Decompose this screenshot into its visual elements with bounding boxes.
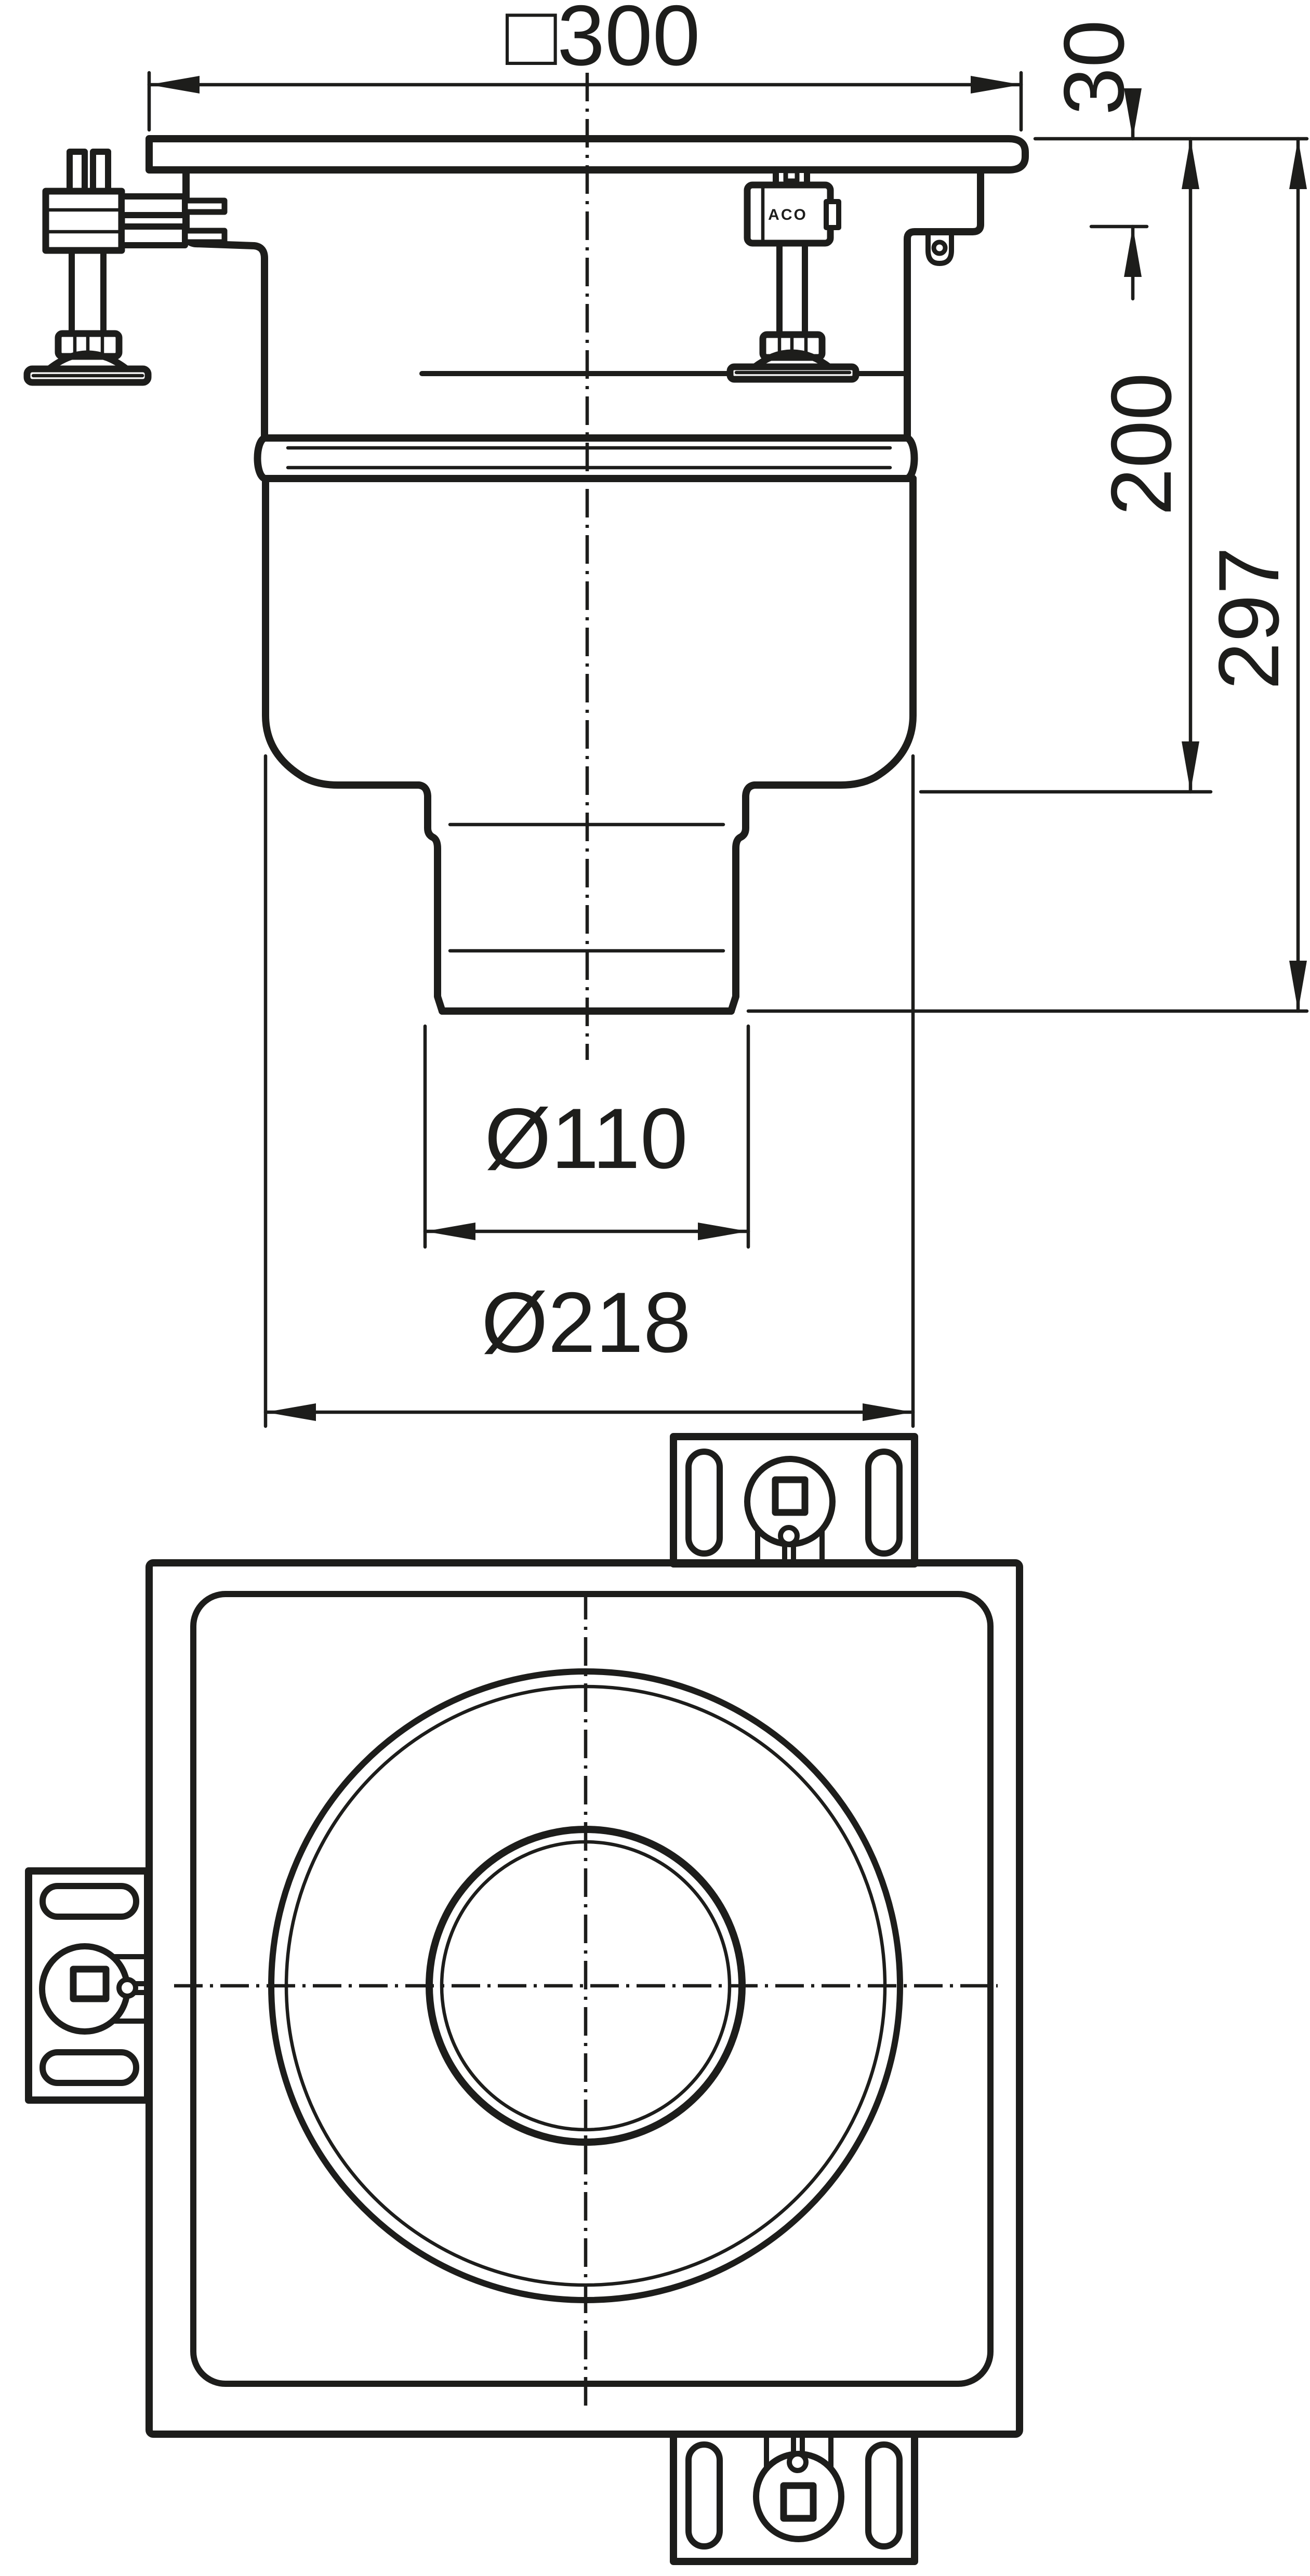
dim-rim-height: 30: [1035, 20, 1307, 299]
left-foot-assembly: [27, 152, 224, 382]
dim-label-body-dia: Ø218: [481, 1274, 691, 1370]
dim-ext-line: [1035, 139, 1307, 227]
drawing-canvas: ACO □300 30: [0, 0, 1310, 2576]
arrow-down-icon: [1289, 961, 1307, 1011]
right-clamp-hook: [826, 202, 839, 228]
left-clamp-finger-lower: [185, 231, 224, 242]
arrow-right-icon: [863, 1403, 913, 1421]
left-clamp-finger-upper: [185, 201, 224, 212]
left-clamp-arm-lower: [122, 227, 185, 245]
arrow-up-icon: [1182, 139, 1199, 189]
top-bracket: [689, 1452, 899, 1563]
bottom-clamp-grip: [784, 2486, 813, 2518]
dim-label-total-depth: 297: [1201, 547, 1296, 689]
body-right-wall: [731, 170, 981, 1011]
inner-rounded-square: [193, 1594, 990, 2384]
body-left-wall: [186, 170, 442, 1011]
arrow-right-icon: [971, 76, 1021, 94]
dim-total-depth: 297: [748, 139, 1307, 1011]
arrow-down-icon: [1182, 741, 1199, 792]
left-clamp-arm-upper: [122, 196, 185, 215]
left-leg: [72, 250, 103, 334]
dim-label-outlet-dia: Ø110: [484, 1091, 687, 1186]
arrow-left-icon: [266, 1403, 316, 1421]
arrow-left-icon: [149, 76, 200, 94]
dim-body-depth: 200: [921, 139, 1211, 792]
left-clamp-body: [46, 191, 122, 250]
plan-view: [29, 1437, 1020, 2561]
right-leg: [779, 243, 805, 335]
dim-label-rim-height: 30: [1046, 20, 1142, 115]
arrow-left-icon: [425, 1223, 475, 1240]
left-clamp-hook-prong: [93, 152, 108, 193]
fixing-lug-hole: [934, 242, 945, 254]
left-clamp-grip: [73, 1969, 106, 1999]
bottom-clamp-screw: [789, 2454, 806, 2471]
arrow-up-icon: [1289, 139, 1307, 189]
top-clamp-grip: [775, 1480, 805, 1512]
arrow-right-icon: [698, 1223, 748, 1240]
top-clamp-screw: [780, 1528, 797, 1544]
arrow-up-icon: [1124, 227, 1142, 277]
brand-logo-text: ACO: [768, 206, 808, 223]
left-clamp-hook-prong: [70, 152, 85, 193]
left-clamp-screw: [119, 1980, 136, 1996]
dim-label-body-depth: 200: [1093, 373, 1189, 515]
right-foot-assembly: ACO: [730, 170, 856, 379]
dim-label-top-width: □300: [506, 0, 700, 83]
dim-top-width: □300: [149, 0, 1021, 130]
side-view: ACO □300 30: [27, 0, 1307, 1426]
bottom-bracket: [689, 2436, 899, 2546]
